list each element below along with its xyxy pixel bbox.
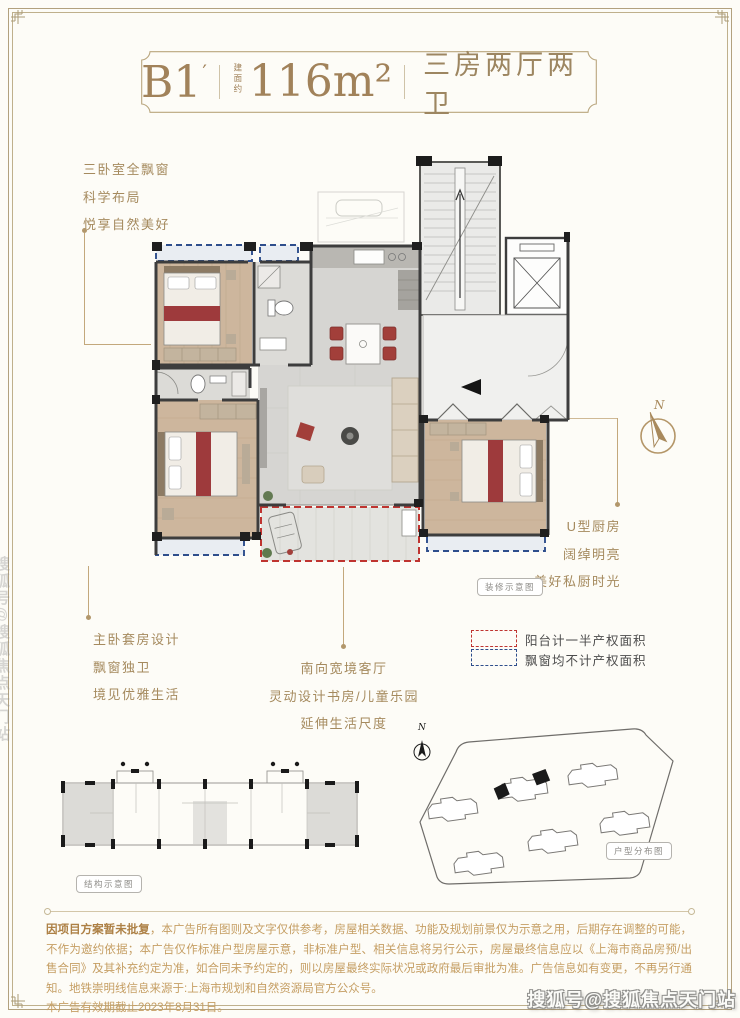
area-label: 建面约 (232, 63, 244, 101)
prime-mark: ′ (202, 60, 207, 84)
floorplan-poster: B1′ 建面约 116m² 三房两厅两卫 三卧室全飘窗 科学布局 悦享自然美好 … (0, 0, 740, 1018)
header-divider (219, 65, 220, 99)
siteplan-compass-icon (414, 740, 430, 760)
unit-code: B1′ (141, 60, 207, 105)
corner-fret-icon (712, 7, 732, 27)
callout-line (617, 418, 618, 503)
siteplan-n-label: N (418, 723, 426, 733)
callout-line (88, 566, 89, 616)
annotation-master-suite: 主卧套房设计 飘窗独卫 境见优雅生活 (93, 626, 180, 709)
floorplan-drawing (140, 148, 610, 608)
structure-diagram (55, 743, 367, 873)
site-plan (390, 722, 682, 890)
watermark-side: 搜狐号@搜狐焦点天门站 (0, 556, 12, 743)
divider-end-dot (688, 908, 695, 915)
watermark-sohu: 搜狐号@搜狐焦点天门站 (527, 986, 736, 1012)
callout-line (84, 233, 85, 345)
header-plaque: B1′ 建面约 116m² 三房两厅两卫 (141, 51, 597, 113)
legend-baywindow-swatch (471, 649, 517, 666)
header-divider (404, 65, 405, 99)
callout-dot (615, 502, 620, 507)
legend-balcony-label: 阳台计一半产权面积 (525, 630, 647, 649)
structure-caption: 结构示意图 (76, 875, 142, 893)
callout-dot (341, 644, 346, 649)
legend-balcony-swatch (471, 630, 517, 647)
room-layout-label: 三房两厅两卫 (423, 43, 597, 121)
area-value: 116m² (249, 60, 392, 104)
siteplan-caption: 户型分布图 (606, 842, 672, 860)
legend-baywindow-label: 飘窗均不计产权面积 (525, 650, 647, 669)
section-divider (47, 911, 692, 912)
disclaimer-lead: 因项目方案暂未批复 (46, 924, 150, 936)
divider-end-dot (44, 908, 51, 915)
corner-fret-icon (8, 991, 28, 1011)
compass-n-label: N (654, 398, 665, 412)
callout-dot (86, 615, 91, 620)
floorplan-caption: 装修示意图 (477, 578, 543, 596)
corner-fret-icon (8, 7, 28, 27)
